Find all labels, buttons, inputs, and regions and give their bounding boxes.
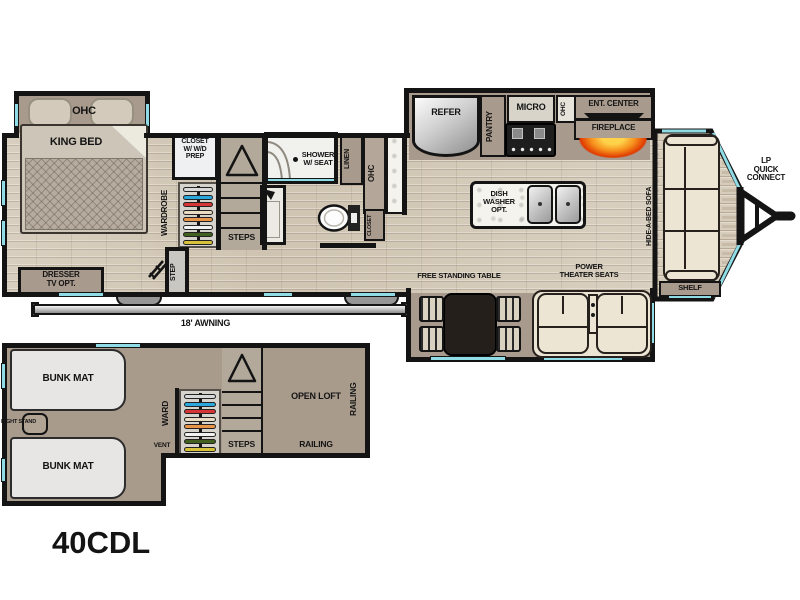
- bedroom-window: [1, 220, 6, 246]
- hanger-bar: [184, 439, 216, 444]
- loft-steps-divider: [261, 348, 263, 453]
- linen-label: LINEN: [344, 139, 358, 179]
- seat-line: [539, 326, 587, 328]
- loft-wall-top: [2, 343, 370, 348]
- seat-line: [621, 296, 623, 314]
- loft-wall-bottom-right: [161, 453, 370, 458]
- loft-steps-label: STEPS: [222, 440, 261, 449]
- dining-chair: [419, 326, 444, 352]
- hanger-bar: [183, 240, 213, 245]
- night-stand-label: NIGHT STAND: [1, 420, 47, 426]
- wardrobe-label: WARDROBE: [161, 181, 174, 245]
- theater-seats-label: POWER THEATER SEATS: [530, 263, 648, 279]
- dining-chair: [419, 296, 444, 322]
- king-slide-wall-top: [14, 91, 150, 96]
- model-name: 40CDL: [52, 526, 192, 559]
- wardrobe-hanger-rack: [178, 182, 218, 248]
- sofa-cushion-line: [665, 188, 718, 190]
- bath-ohc-label: OHC: [368, 158, 381, 188]
- kitchen-ohc-label: OHC: [560, 98, 572, 120]
- refer-label: REFER: [412, 108, 480, 118]
- dining-table: [443, 293, 497, 356]
- shower-door-window: [267, 178, 335, 182]
- loft-step-line: [222, 430, 261, 432]
- ent-center-label: ENT. CENTER: [574, 100, 653, 109]
- main-wall-left: [2, 133, 7, 297]
- sofa-armrest: [665, 135, 718, 146]
- loft-window-left: [1, 363, 6, 389]
- loft-step-line: [222, 417, 261, 419]
- awning-label: 18' AWNING: [158, 319, 253, 329]
- hanger-bar: [184, 394, 216, 399]
- sofa-armrest: [665, 270, 718, 281]
- hanger-bar: [183, 225, 213, 230]
- awning-bar: [33, 304, 407, 315]
- bunk-mat-bottom-label: BUNK MAT: [10, 462, 126, 473]
- fireplace-label: FIREPLACE: [574, 124, 653, 133]
- loft-step-line: [222, 404, 261, 406]
- steps-arrow-icon: [224, 142, 260, 178]
- shelf-label: SHELF: [659, 284, 721, 292]
- step-line: [221, 227, 262, 229]
- hitch-icon: [730, 175, 800, 260]
- hanger-bar: [184, 402, 216, 407]
- loft-window-left: [1, 458, 6, 482]
- kitchen-slide-wall-left: [404, 88, 409, 138]
- loft-wall-bottom-left: [2, 501, 166, 506]
- loft-wall-right: [365, 343, 370, 458]
- step-line: [221, 212, 262, 214]
- loft-wall-mid: [161, 455, 166, 503]
- step-line: [221, 182, 262, 184]
- sofa-cushion-line: [684, 147, 686, 269]
- sink-drain-icon: [566, 202, 570, 206]
- step-line: [221, 197, 262, 199]
- bedroom-ohc-label: OHC: [40, 106, 128, 118]
- bottom-window: [58, 292, 104, 297]
- hanger-bar: [183, 202, 213, 207]
- closet-wd-prep-label: CLOSET W/ W/D PREP: [172, 138, 218, 161]
- cupholder-icon: [591, 313, 595, 317]
- wall-steps-hall: [262, 136, 267, 250]
- entry-step-label: STEP: [170, 252, 184, 292]
- hanger-bar: [184, 417, 216, 422]
- micro-label: MICRO: [507, 103, 555, 113]
- railing-side-label: RAILING: [349, 374, 362, 424]
- floorplan: LP QUICK CONNECT OHC KING BED WARDROBE C…: [0, 0, 800, 600]
- bedroom-window: [1, 180, 6, 206]
- table-label: FREE STANDING TABLE: [405, 272, 513, 280]
- dishwasher-label: DISH WASHER OPT.: [474, 190, 524, 214]
- hanger-bar: [183, 187, 213, 192]
- slide-window: [430, 356, 506, 361]
- main-wall-top-mid: [144, 133, 410, 138]
- toilet: [317, 200, 365, 236]
- vanity-basin: [266, 201, 280, 238]
- ward-label: WARD: [161, 392, 175, 434]
- kitchen-slide-wall-top: [404, 88, 655, 93]
- king-bed-label: KING BED: [28, 137, 124, 149]
- wall-closet-steps: [216, 136, 221, 250]
- seat-line: [598, 326, 646, 328]
- hanger-bar: [183, 217, 213, 222]
- wall-bath-bottom: [320, 243, 376, 248]
- loft-hanger-rack: [179, 389, 221, 455]
- refrigerator: [412, 95, 480, 157]
- loft-window-top: [95, 343, 141, 348]
- burner-icon: [534, 128, 545, 139]
- hanger-bar: [183, 210, 213, 215]
- bottom-slide-wall-left: [406, 288, 411, 362]
- king-bed-quilt: [25, 158, 143, 230]
- dining-chair: [496, 296, 521, 322]
- hanger-bar: [184, 432, 216, 437]
- railing-bottom-label: RAILING: [288, 440, 344, 449]
- sofa-cushion-line: [665, 230, 718, 232]
- king-slide-window-left: [14, 103, 19, 127]
- stove-knobs: [509, 146, 553, 153]
- seat-line: [562, 296, 564, 314]
- dresser-label: DRESSER TV OPT.: [18, 271, 104, 288]
- loft-step-line: [222, 391, 261, 393]
- hide-a-bed-sofa: [663, 134, 720, 282]
- hanger-bar: [184, 424, 216, 429]
- cupholder-icon: [591, 303, 595, 307]
- burner-icon: [512, 128, 523, 139]
- sink-drain-icon: [538, 202, 542, 206]
- grab-handle-icon: [146, 256, 168, 280]
- pantry-label: PANTRY: [486, 104, 500, 149]
- steps-arrow-icon: [226, 352, 258, 384]
- dining-chair: [496, 326, 521, 352]
- hanger-bar: [184, 447, 216, 452]
- bunk-mat-top-label: BUNK MAT: [10, 374, 126, 385]
- bottom-window: [263, 292, 293, 297]
- shower-label: SHOWER W/ SEAT: [297, 151, 339, 167]
- lp-quick-connect-label: LP QUICK CONNECT: [733, 157, 799, 183]
- hanger-bar: [184, 409, 216, 414]
- hanger-bar: [183, 232, 213, 237]
- vent-label: VENT: [148, 442, 176, 449]
- wall-bath-kitchen: [402, 133, 407, 215]
- sofa-label: HIDE-A-BED SOFA: [646, 176, 658, 256]
- main-steps-label: STEPS: [221, 233, 262, 242]
- open-loft-label: OPEN LOFT: [284, 392, 348, 402]
- bath-closet-label: CLOSET: [368, 212, 381, 238]
- hanger-bar: [183, 195, 213, 200]
- flame-icon: [579, 138, 647, 158]
- shelf-window: [668, 295, 712, 299]
